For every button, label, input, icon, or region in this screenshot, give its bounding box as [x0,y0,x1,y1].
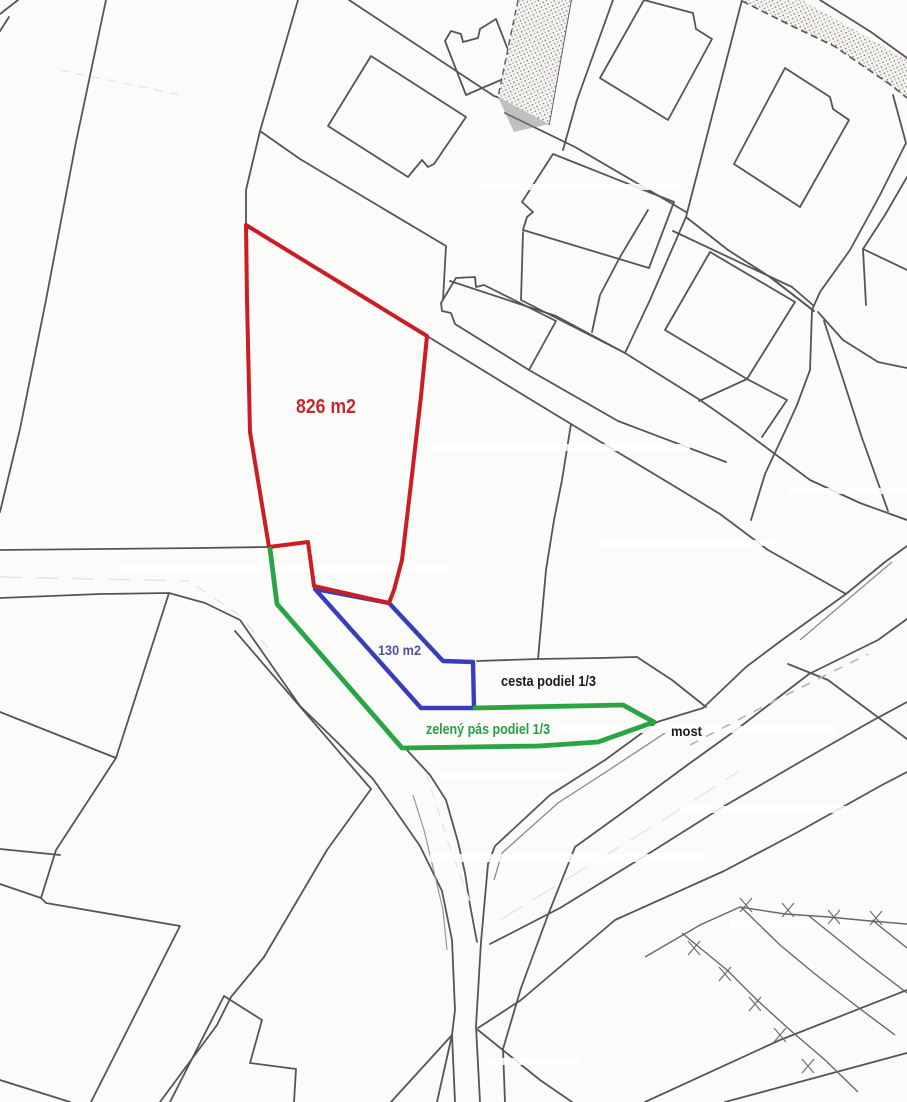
svg-text:zelený pás podiel 1/3: zelený pás podiel 1/3 [426,722,550,738]
svg-text:826 m2: 826 m2 [296,396,356,418]
svg-text:most: most [671,723,702,739]
svg-text:cesta podiel 1/3: cesta podiel 1/3 [501,673,596,690]
svg-text:130 m2: 130 m2 [378,643,421,658]
